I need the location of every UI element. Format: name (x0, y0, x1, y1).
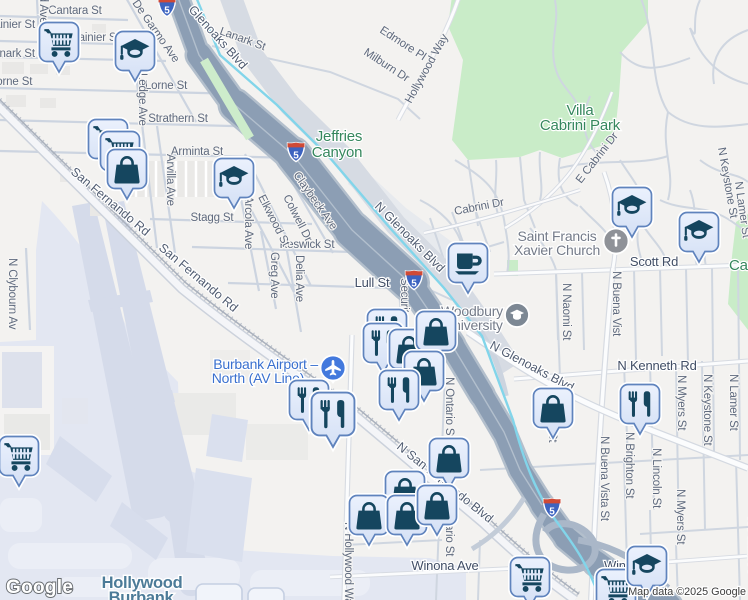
svg-text:N Keystone St: N Keystone St (701, 374, 713, 447)
svg-text:Arvilla Ave: Arvilla Ave (164, 154, 176, 206)
svg-text:N Myers St: N Myers St (674, 489, 686, 545)
svg-text:Greg Ave: Greg Ave (268, 252, 280, 299)
svg-text:N Buena Vista St: N Buena Vista St (598, 436, 610, 522)
svg-text:Jeffries: Jeffries (316, 128, 362, 145)
svg-text:Xavier Church: Xavier Church (514, 242, 600, 258)
svg-text:N Brighton St: N Brighton St (623, 432, 635, 499)
svg-text:Lanark St: Lanark St (0, 48, 36, 60)
svg-text:N Kenneth Rd: N Kenneth Rd (617, 358, 696, 373)
svg-text:Arminta St: Arminta St (171, 146, 224, 158)
svg-text:Lorne St: Lorne St (0, 76, 33, 88)
svg-text:Rainier St: Rainier St (0, 19, 36, 31)
svg-text:Scott Rd: Scott Rd (630, 254, 678, 269)
svg-text:5: 5 (549, 507, 555, 518)
svg-text:N Clybourn Av: N Clybourn Av (6, 258, 18, 330)
svg-text:Cabrini Park: Cabrini Park (540, 117, 621, 134)
svg-text:N Lamer St: N Lamer St (727, 374, 739, 432)
svg-text:Stagg St: Stagg St (191, 212, 235, 224)
svg-text:Winona Ave: Winona Ave (411, 558, 478, 573)
svg-text:N Naomi St: N Naomi St (560, 283, 572, 341)
svg-text:N Buena Vist: N Buena Vist (610, 271, 622, 337)
svg-text:Arcola Ave: Arcola Ave (242, 196, 254, 249)
svg-text:5: 5 (164, 6, 170, 17)
svg-text:Cantara St: Cantara St (48, 5, 102, 17)
svg-text:5: 5 (293, 151, 299, 162)
svg-text:Map data ©2025 Google: Map data ©2025 Google (628, 586, 746, 598)
svg-text:Delia Ave: Delia Ave (293, 255, 305, 302)
svg-text:Burbank: Burbank (109, 589, 175, 600)
svg-text:rd Ave: rd Ave (37, 0, 49, 24)
svg-text:Google: Google (6, 577, 73, 598)
svg-text:Canyon: Canyon (312, 144, 363, 161)
svg-text:Lorne St: Lorne St (145, 80, 188, 92)
svg-text:Lull St: Lull St (355, 275, 390, 290)
svg-text:5: 5 (411, 279, 417, 290)
svg-text:Cam: Cam (729, 257, 748, 274)
svg-text:N Myers St: N Myers St (675, 375, 687, 431)
svg-text:Strathern St: Strathern St (148, 113, 209, 125)
svg-text:N Lincoln St: N Lincoln St (650, 448, 662, 509)
